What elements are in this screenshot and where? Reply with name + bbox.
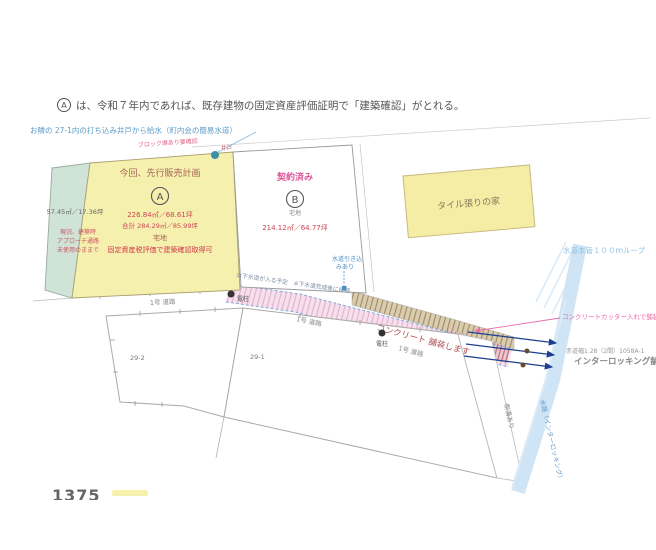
well-note-text: お隣の 27-1内の打ち込み井戸から給水（町内会の簡易水道） [30, 125, 237, 135]
water-main-label: 水道本管１００ｍループ [563, 245, 646, 255]
plot-b-area: 214.12㎡／64.77坪 [262, 224, 328, 232]
strip-area-label: 57.45㎡／17.36坪 [47, 207, 104, 216]
service-note-line1: 水道引き込 [332, 255, 362, 263]
cutter-note: コンクリートカッター入れで舗装します [562, 312, 656, 321]
marker-dot-1 [525, 349, 530, 354]
plot-a-marker: A [157, 192, 164, 203]
utility-pole-1-label: 電柱 [237, 295, 249, 303]
strip-note-2: アプローチ通路 [57, 237, 99, 245]
site-plan-page: 29-2 29-1 ブロック塀あり要確認 今回、先行販売計画 A 226.84㎡… [0, 0, 656, 550]
site-plan-drawing: 29-2 29-1 ブロック塀あり要確認 今回、先行販売計画 A 226.84㎡… [0, 0, 656, 550]
service-note-line2: みあり [336, 264, 354, 271]
parcel-left-label: 29-2 [130, 354, 145, 362]
strip-note-1: 現況、建築時 [60, 228, 96, 236]
note-top-marker: A [61, 101, 67, 110]
marker-dot-2 [521, 363, 526, 368]
parcel-right-label: 29-1 [250, 353, 265, 361]
utility-pole-1 [228, 291, 235, 298]
plot-b-marker: B [292, 195, 299, 206]
utility-pole-2 [379, 330, 386, 337]
plot-a-landtype: 宅地 [153, 233, 167, 242]
plot-b-status: 契約済み [276, 171, 313, 183]
plot-a-area: 226.84㎡／68.61坪 [127, 211, 193, 219]
tile-house: タイル張りの家 [403, 165, 535, 238]
highlight-smear [112, 490, 148, 496]
well-dot [211, 151, 219, 159]
plot-a-total: 合計 284.29㎡／85.99坪 [122, 221, 198, 230]
width-note: 赤道幅1.28（2間）1058A-1 [566, 347, 645, 355]
plot-a-plan-label: 今回、先行販売計画 [119, 167, 200, 179]
parcel-29-2 [106, 308, 243, 417]
service-marker [342, 286, 347, 291]
note-top-text: は、令和７年内であれば、既存建物の固定資産評価証明で「建築確認」がとれる。 [76, 99, 464, 112]
plot-a-approval-note: 固定資産税評価で建築確認取得可 [108, 245, 213, 254]
utility-pole-2-label: 電柱 [376, 340, 388, 348]
plot-b-landtype: 宅地 [289, 209, 301, 217]
page-number-crop-mask [38, 500, 173, 514]
interlocking-note: インターロッキング舗装 [574, 356, 656, 367]
road-label-1: 1号 道路 [150, 297, 177, 307]
strip-note-3: 未使用のままで [57, 246, 99, 254]
